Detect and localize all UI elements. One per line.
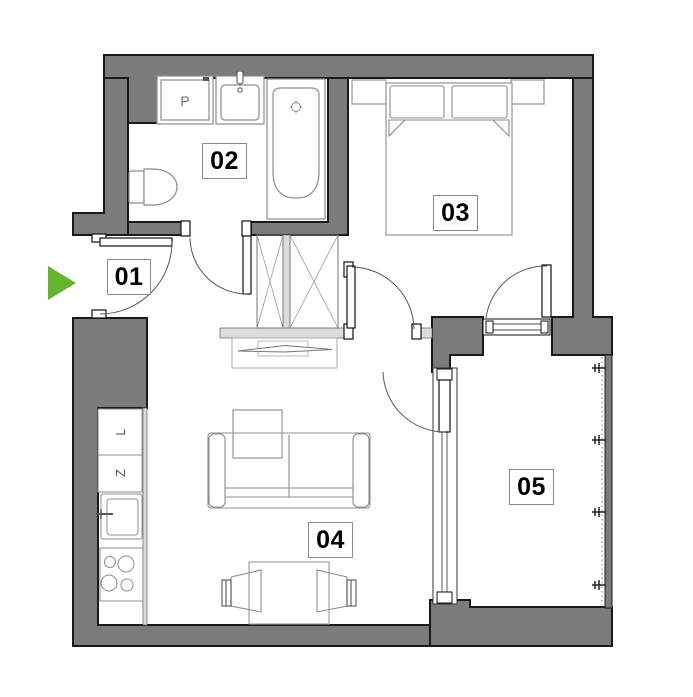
washing-machine-label: P <box>180 93 189 109</box>
room-label-03: 03 <box>433 195 478 231</box>
wall-left-upper <box>73 78 128 235</box>
balcony-railing <box>592 357 606 605</box>
kitchen-sink <box>96 494 142 539</box>
door-leaf <box>100 238 172 246</box>
railing-post-icon <box>592 363 606 373</box>
sofa-armrest <box>353 434 369 507</box>
nightstand <box>511 80 544 104</box>
window-frame-end <box>437 369 452 380</box>
faucet-icon <box>238 88 242 92</box>
door-swing-arc <box>486 266 547 318</box>
cabinet-z-label: Z <box>113 469 128 477</box>
living-balcony-window <box>383 368 457 604</box>
sofa-armrest <box>209 434 225 507</box>
partition-hall-living-left <box>220 328 345 338</box>
tv-stand <box>232 338 337 368</box>
door-jamb <box>242 221 251 236</box>
kitchen-run: L Z <box>96 409 143 601</box>
room-label-05: 05 <box>509 469 554 505</box>
sofa-cushion <box>233 410 282 458</box>
partition-hall-living-right <box>421 328 432 338</box>
door-jamb <box>412 324 421 339</box>
living-room-door <box>344 262 421 339</box>
dining-set <box>222 562 356 624</box>
door-swing-arc <box>190 238 247 294</box>
faucet-icon <box>237 71 243 84</box>
partitions <box>143 235 432 625</box>
wardrobe <box>290 235 338 328</box>
balcony-rail-strip <box>605 355 612 608</box>
kitchen-counter-edge <box>143 408 147 625</box>
washing-machine: P <box>157 76 213 124</box>
railing-post-icon <box>592 507 606 517</box>
wardrobe <box>257 235 283 328</box>
bedroom-balcony-door <box>483 265 551 335</box>
nightstand <box>352 80 386 104</box>
wall-bath-bottom-left <box>128 222 182 235</box>
entrance-arrow-icon <box>48 266 76 300</box>
wall-block-balcony-left <box>432 317 483 372</box>
wall-balcony-bottom <box>430 600 612 646</box>
kitchen-cabinet-l: L <box>98 409 142 455</box>
toilet <box>129 169 177 205</box>
door-leaf <box>542 265 551 317</box>
window-frame-end <box>541 321 548 333</box>
bathroom-door <box>181 221 251 294</box>
tv-sideboard <box>232 338 337 368</box>
room-label-01: 01 <box>107 259 151 295</box>
bathroom-sink <box>216 71 264 124</box>
pillow <box>390 86 444 118</box>
railing-post-icon <box>592 580 606 590</box>
window-frame-end <box>486 321 493 333</box>
door-swing-arc <box>352 267 414 329</box>
door-leaf <box>243 236 251 294</box>
floor-plan-drawing: P <box>0 0 693 697</box>
living-furniture <box>208 410 370 624</box>
floor-plan: P <box>0 0 693 697</box>
room-label-04: 04 <box>308 522 353 558</box>
cabinet-l-label: L <box>113 428 128 435</box>
railing-post-icon <box>592 435 606 445</box>
door-leaf <box>439 380 450 432</box>
wall-right <box>552 78 612 355</box>
room-label-02: 02 <box>202 143 247 179</box>
wardrobe-divider <box>283 235 290 328</box>
chair <box>222 570 261 612</box>
bathtub <box>267 79 325 219</box>
door-jamb <box>181 221 190 236</box>
door-leaf <box>347 266 355 328</box>
pillow <box>452 86 507 118</box>
stove <box>100 548 143 601</box>
chair <box>317 570 356 612</box>
kitchen-cabinet-z: Z <box>98 455 142 492</box>
sofa <box>208 433 370 508</box>
window-frame-end <box>437 592 452 603</box>
wardrobes <box>257 235 338 328</box>
tv-screen <box>238 346 332 353</box>
